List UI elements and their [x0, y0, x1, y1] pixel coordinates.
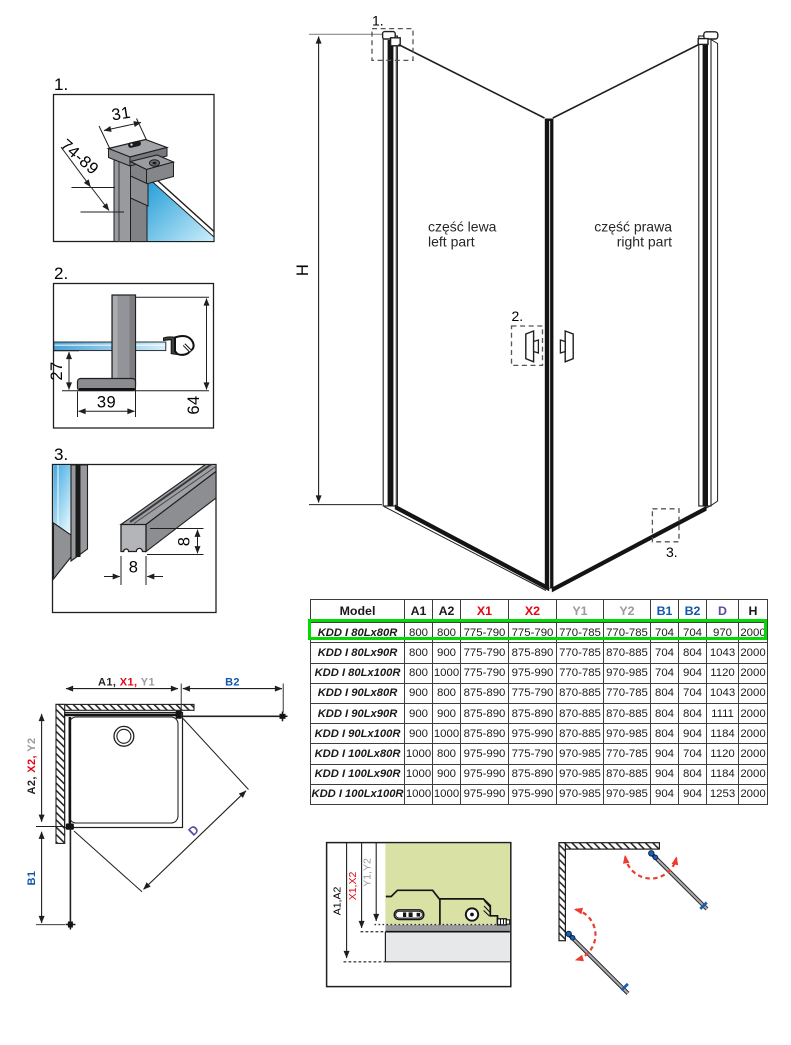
svg-text:A2, X2, Y2: A2, X2, Y2	[26, 737, 38, 794]
svg-text:A1, X1, Y1: A1, X1, Y1	[98, 677, 155, 689]
svg-text:3.: 3.	[666, 544, 678, 560]
svg-text:3.: 3.	[54, 445, 68, 464]
svg-text:X1,X2: X1,X2	[347, 872, 359, 901]
svg-text:2.: 2.	[512, 308, 524, 324]
svg-text:B1: B1	[26, 871, 38, 886]
svg-text:right part: right part	[617, 234, 672, 250]
svg-text:39: 39	[97, 394, 116, 412]
svg-text:część prawa: część prawa	[594, 219, 672, 235]
svg-text:2.: 2.	[54, 264, 68, 283]
svg-text:1.: 1.	[372, 13, 384, 29]
svg-text:27: 27	[48, 361, 66, 380]
svg-text:8: 8	[176, 537, 194, 547]
svg-text:31: 31	[110, 104, 132, 125]
svg-text:left part: left part	[428, 234, 475, 250]
svg-text:A1,A2: A1,A2	[332, 887, 344, 916]
svg-text:64: 64	[185, 395, 203, 414]
svg-text:Y1,Y2: Y1,Y2	[362, 858, 374, 887]
svg-text:część lewa: część lewa	[428, 219, 497, 235]
svg-text:B2: B2	[225, 677, 240, 689]
svg-text:1.: 1.	[54, 75, 68, 94]
svg-text:8: 8	[129, 559, 139, 577]
svg-text:H: H	[294, 264, 312, 276]
